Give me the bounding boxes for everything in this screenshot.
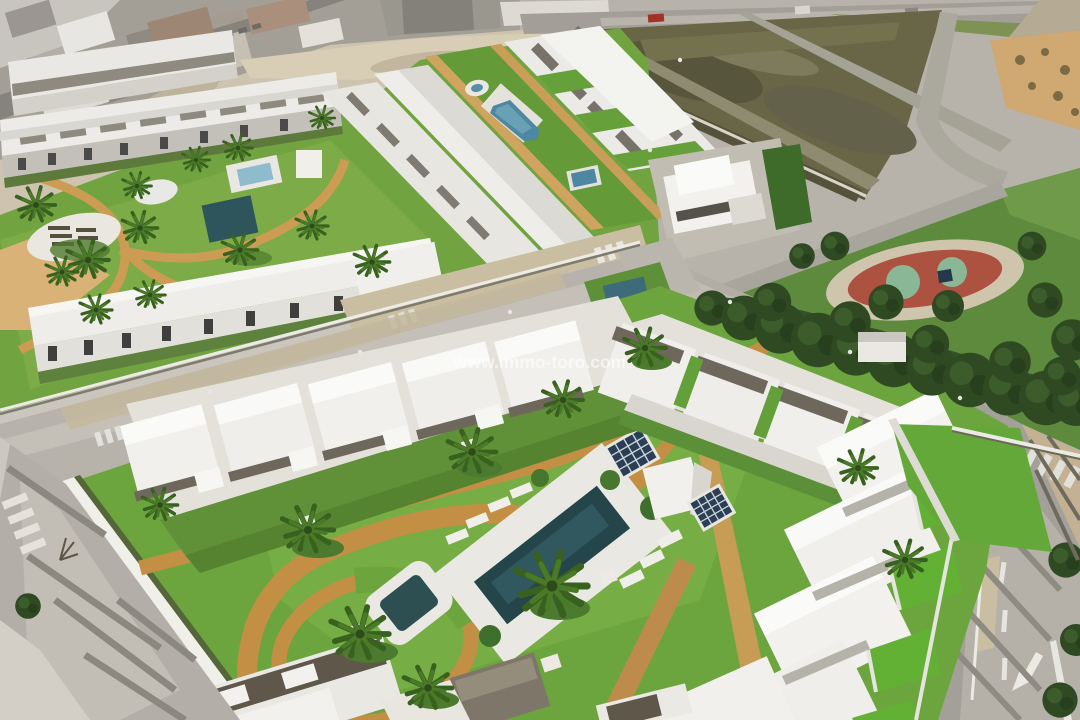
svg-text:www.immo-toro.com: www.immo-toro.com <box>453 352 626 372</box>
